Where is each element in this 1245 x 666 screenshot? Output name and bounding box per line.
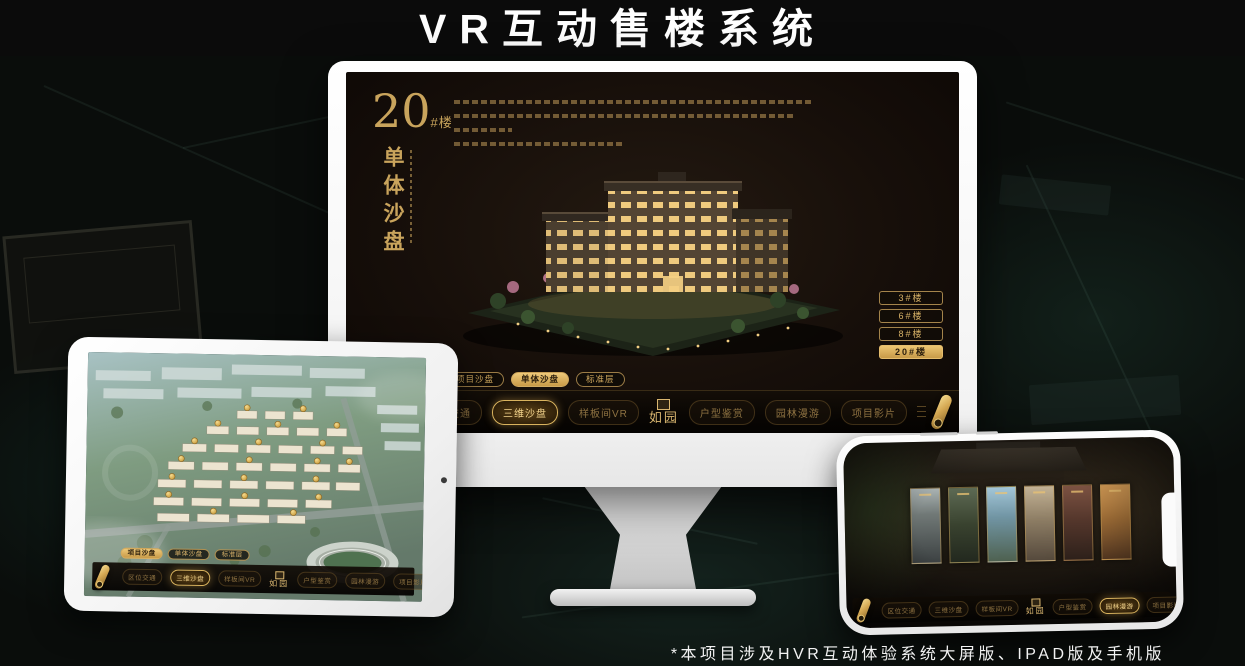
building-button-3[interactable]: 3#楼 bbox=[879, 291, 943, 305]
description-text-line bbox=[454, 100, 812, 104]
nav-item-garden-roam[interactable]: 园林漫游 bbox=[1099, 597, 1139, 614]
phone-device: 区位交通 三维沙盘 样板间VR 如园 户型鉴赏 园林漫游 项目影片 bbox=[836, 429, 1184, 635]
sandbox-sub-tabs: 项目沙盘 单体沙盘 标准层 bbox=[446, 372, 625, 387]
background-building bbox=[1029, 375, 1181, 425]
description-text-line bbox=[454, 114, 794, 118]
nav-item-location-traffic[interactable]: 区位交通 bbox=[881, 601, 921, 618]
seal-icon bbox=[275, 571, 284, 579]
tab-single-sandbox[interactable]: 单体沙盘 bbox=[511, 372, 569, 387]
building-button-6[interactable]: 6#楼 bbox=[879, 309, 943, 323]
brand-logo-text: 如园 bbox=[649, 412, 679, 425]
panel-title-vertical: 单体沙盘 bbox=[378, 146, 408, 258]
monitor-stand-base bbox=[550, 589, 756, 606]
brand-logo-text: 如园 bbox=[1026, 607, 1046, 615]
map-road-line bbox=[1006, 101, 1244, 180]
nav-item-project-film[interactable]: 项目影片 bbox=[841, 400, 907, 425]
nav-item-location-traffic[interactable]: 区位交通 bbox=[122, 569, 162, 586]
tablet-nav-bar: 区位交通 三维沙盘 样板间VR 如园 户型鉴赏 园林漫游 项目影片 bbox=[92, 562, 414, 596]
nav-item-3d-sandbox[interactable]: 三维沙盘 bbox=[170, 569, 210, 586]
nav-item-showroom-vr[interactable]: 样板间VR bbox=[568, 400, 639, 425]
nav-item-3d-sandbox[interactable]: 三维沙盘 bbox=[492, 400, 558, 425]
block-suffix: #楼 bbox=[431, 115, 453, 130]
title-bar: VR互动售楼系统 bbox=[0, 0, 1245, 56]
building-button-20[interactable]: 20#楼 bbox=[879, 345, 943, 359]
scroll-icon[interactable] bbox=[855, 597, 871, 623]
nav-item-floorplan-gallery[interactable]: 户型鉴赏 bbox=[1052, 598, 1092, 615]
scroll-icon[interactable] bbox=[930, 393, 954, 430]
block-number: 20#楼 bbox=[372, 88, 453, 134]
nav-item-floorplan-gallery[interactable]: 户型鉴赏 bbox=[689, 400, 755, 425]
seal-icon bbox=[657, 399, 670, 410]
tab-project-sandbox[interactable]: 项目沙盘 bbox=[121, 548, 163, 560]
background-building bbox=[999, 174, 1112, 215]
brand-logo: 如园 bbox=[269, 571, 289, 588]
nav-item-garden-roam[interactable]: 园林漫游 bbox=[345, 572, 385, 589]
brand-logo: 如园 bbox=[649, 399, 679, 425]
nav-item-3d-sandbox[interactable]: 三维沙盘 bbox=[928, 600, 968, 617]
tablet-sub-tabs: 项目沙盘 单体沙盘 标准层 bbox=[121, 548, 250, 561]
tab-standard-floor[interactable]: 标准层 bbox=[215, 549, 250, 561]
tab-single-sandbox[interactable]: 单体沙盘 bbox=[168, 548, 210, 560]
brand-logo-text: 如园 bbox=[269, 580, 289, 588]
nav-item-project-film[interactable]: 项目影片 bbox=[393, 573, 426, 590]
tablet-device: 项目沙盘 单体沙盘 标准层 区位交通 三维沙盘 样板间VR 如园 户型鉴赏 园林… bbox=[64, 337, 459, 618]
scroll-swirl-decor bbox=[917, 406, 926, 418]
tablet-camera-dot bbox=[441, 477, 447, 483]
promo-canvas: VR互动售楼系统 20#楼 单体沙盘 bbox=[0, 0, 1245, 666]
page-title: VR互动售楼系统 bbox=[0, 0, 1245, 58]
nav-item-floorplan-gallery[interactable]: 户型鉴赏 bbox=[297, 572, 337, 589]
tab-standard-floor[interactable]: 标准层 bbox=[576, 372, 625, 387]
phone-screen: 区位交通 三维沙盘 样板间VR 如园 户型鉴赏 园林漫游 项目影片 bbox=[843, 437, 1177, 629]
footnote-text: *本项目涉及HVR互动体验系统大屏版、IPAD版及手机版 bbox=[671, 640, 1165, 664]
nav-item-showroom-vr[interactable]: 样板间VR bbox=[975, 599, 1018, 616]
nav-item-garden-roam[interactable]: 园林漫游 bbox=[765, 400, 831, 425]
phone-volume-button bbox=[920, 432, 958, 436]
seal-icon bbox=[1031, 598, 1040, 606]
tablet-screen: 项目沙盘 单体沙盘 标准层 区位交通 三维沙盘 样板间VR 如园 户型鉴赏 园林… bbox=[84, 352, 426, 602]
title-divider bbox=[410, 150, 412, 246]
building-button-8[interactable]: 8#楼 bbox=[879, 327, 943, 341]
scroll-icon[interactable] bbox=[94, 563, 111, 589]
brand-logo: 如园 bbox=[1025, 598, 1045, 615]
nav-item-showroom-vr[interactable]: 样板间VR bbox=[218, 570, 261, 587]
building-3d-model[interactable] bbox=[458, 128, 848, 358]
map-road-line bbox=[43, 85, 336, 217]
nav-item-project-film[interactable]: 项目影片 bbox=[1146, 596, 1176, 613]
phone-power-button bbox=[976, 431, 998, 434]
building-selector: 3#楼 6#楼 8#楼 20#楼 bbox=[879, 291, 943, 359]
phone-notch bbox=[1161, 492, 1177, 566]
